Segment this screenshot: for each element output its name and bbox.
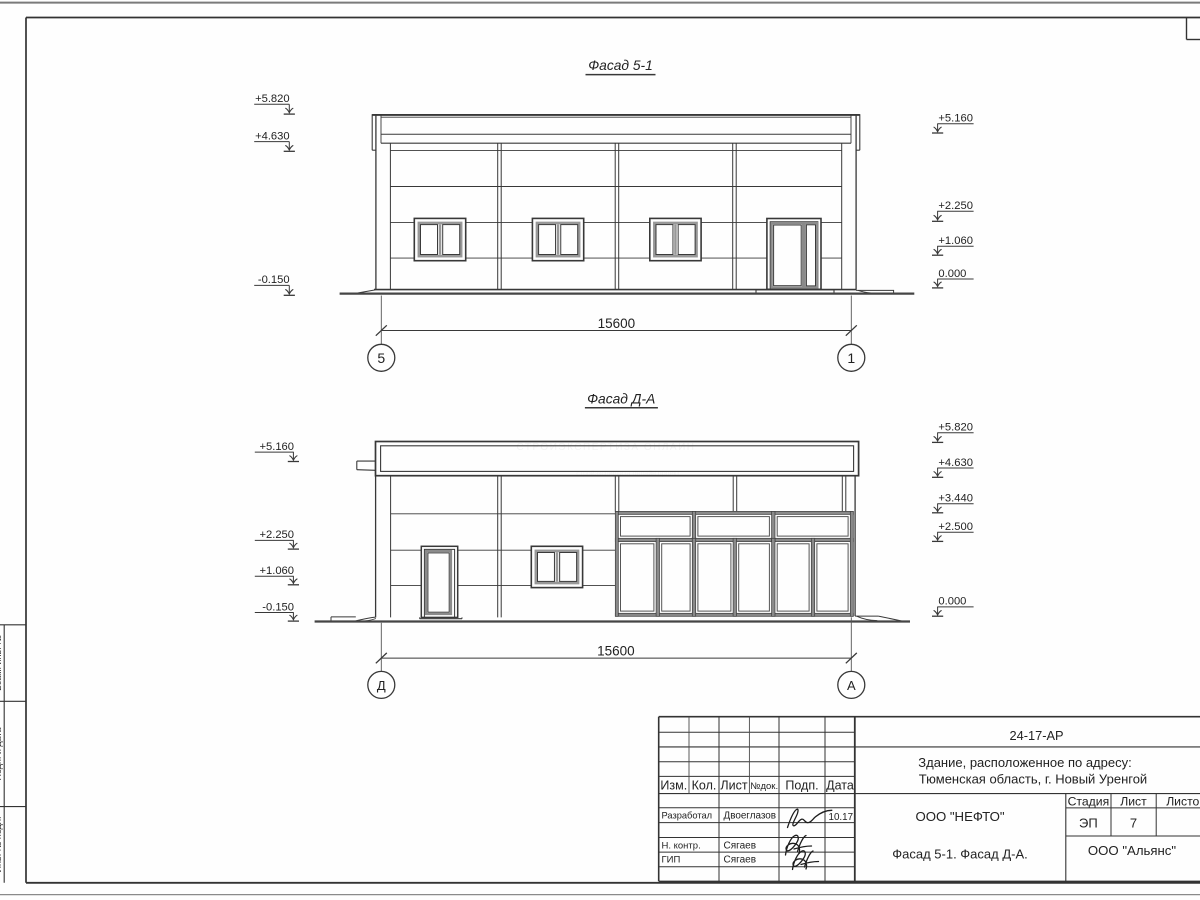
svg-text:+5.160: +5.160 [259,441,294,453]
svg-text:-0.150: -0.150 [262,601,294,613]
svg-text:№док.: №док. [750,781,778,792]
svg-text:Фасад 5-1. Фасад Д-А.: Фасад 5-1. Фасад Д-А. [892,846,1028,861]
svg-text:+4.630: +4.630 [938,457,973,469]
svg-text:+2.250: +2.250 [938,200,973,212]
svg-text:0.000: 0.000 [938,268,966,280]
svg-text:+1.060: +1.060 [938,235,973,247]
svg-text:Изм.: Изм. [660,779,687,793]
svg-text:Стадия: Стадия [1068,794,1110,808]
svg-text:+2.500: +2.500 [938,521,973,533]
svg-text:15600: 15600 [598,316,636,331]
svg-text:Здание, расположенное по адрес: Здание, расположенное по адресу: [918,755,1131,770]
svg-text:15600: 15600 [597,643,635,658]
svg-text:Сягаев: Сягаев [724,841,757,852]
svg-text:А: А [847,678,856,693]
svg-text:+5.160: +5.160 [938,113,973,125]
svg-text:Сягаев: Сягаев [724,855,757,866]
svg-text:Лист: Лист [1120,794,1147,808]
svg-text:+5.820: +5.820 [938,422,973,434]
svg-text:5: 5 [377,350,385,366]
svg-text:0.000: 0.000 [938,596,966,608]
svg-text:Подп.: Подп. [785,779,818,793]
svg-text:ООО "НЕФТО": ООО "НЕФТО" [915,809,1004,824]
svg-text:ЭП: ЭП [1079,816,1098,831]
svg-text:+2.250: +2.250 [259,529,294,541]
svg-text:Инв. № подл.: Инв. № подл. [0,816,3,872]
svg-text:10.17: 10.17 [829,812,854,823]
svg-text:Тюменская область, г. Новый Ур: Тюменская область, г. Новый Уренгой [919,771,1147,786]
svg-text:Дата: Дата [826,779,854,793]
svg-text:+5.820: +5.820 [255,93,290,105]
svg-text:Взам. инв. №: Взам. инв. № [0,635,3,691]
svg-text:1: 1 [847,350,855,366]
svg-text:Фасад Д-А: Фасад Д-А [587,391,655,406]
svg-text:Разработал: Разработал [662,811,713,821]
svg-text:ООО "Альянс": ООО "Альянс" [1088,843,1176,858]
svg-text:Фасад 5-1: Фасад 5-1 [588,58,653,73]
svg-text:7: 7 [1130,816,1137,831]
svg-text:Д: Д [377,678,386,693]
svg-text:24-17-АР: 24-17-АР [1009,728,1063,743]
svg-text:+4.630: +4.630 [255,130,290,142]
svg-text:Кол.: Кол. [692,779,717,793]
svg-text:Н. контр.: Н. контр. [662,841,701,852]
svg-text:+3.440: +3.440 [938,493,973,505]
svg-text:-0.150: -0.150 [258,274,290,286]
svg-text:Листов: Листов [1166,794,1200,808]
svg-text:+1.060: +1.060 [259,565,294,577]
svg-text:Подп. и дата: Подп. и дата [0,727,3,780]
svg-text:Лист: Лист [720,779,747,793]
svg-text:ГИП: ГИП [662,855,681,866]
svg-text:Двоеглазов: Двоеглазов [724,811,777,822]
